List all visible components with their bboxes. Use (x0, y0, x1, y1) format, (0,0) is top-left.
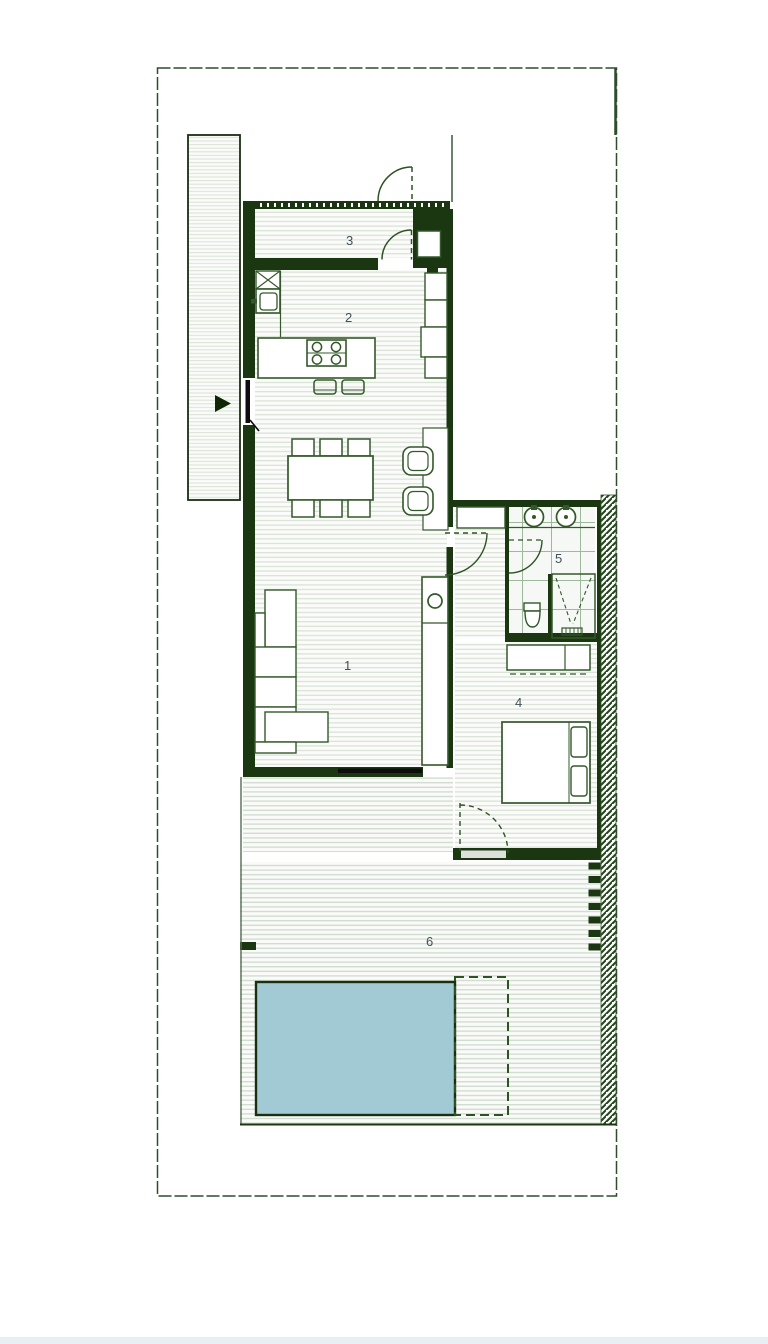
hall-closet (457, 507, 505, 528)
sink-faucet (531, 505, 537, 510)
west-wall-lower (243, 425, 255, 768)
sofa-chaise (265, 712, 328, 742)
bedroom-door-threshold (461, 851, 506, 859)
entry-hall-floor (255, 209, 413, 258)
dining-set (288, 439, 373, 517)
dining-chair (320, 500, 342, 517)
sink-faucet (251, 299, 257, 304)
sofa-module (255, 742, 296, 753)
wing-east-wall (597, 500, 601, 860)
sofa-module (255, 647, 296, 677)
room-label-entry: 3 (346, 233, 353, 248)
dining-table (288, 456, 373, 500)
west-wall-upper (243, 201, 255, 378)
tall-cabinet (425, 300, 447, 327)
room-label-living: 1 (344, 658, 351, 673)
dining-chairs-bottom (292, 500, 370, 517)
dining-chair (348, 500, 370, 517)
sofa-module (255, 677, 296, 707)
swimming-pool (256, 982, 455, 1115)
double-bed (502, 722, 590, 803)
sink-drain (564, 515, 568, 519)
sink-drain (532, 515, 536, 519)
floor-plan-canvas: 1 2 3 4 5 6 (0, 0, 768, 1344)
toilet-tank (524, 603, 540, 611)
bedroom-furniture (502, 645, 590, 803)
entry-storage-niche (418, 231, 441, 257)
sofa-module (265, 590, 296, 647)
dining-chair (292, 500, 314, 517)
dining-chair (348, 439, 370, 456)
tall-cabinet (421, 327, 447, 357)
sink-faucet (563, 505, 569, 510)
toilet-bowl (525, 611, 540, 627)
room-label-kitchen: 2 (345, 310, 352, 325)
dining-chair (292, 439, 314, 456)
tall-cabinet (425, 357, 447, 378)
entry-kitchen-wall (243, 258, 378, 270)
driveway-strip (188, 135, 240, 500)
floor-plan-page: 1 2 3 4 5 6 (0, 0, 768, 1344)
media-partition (422, 577, 448, 765)
covered-terrace-floor (243, 777, 453, 852)
terrace-wall-stub (240, 942, 256, 950)
room-label-terrace: 6 (426, 934, 433, 949)
footer-strip (0, 1337, 768, 1344)
dining-chair (320, 439, 342, 456)
dining-chairs-top (292, 439, 370, 456)
partition-body (422, 577, 448, 765)
kitchen-island (258, 338, 375, 378)
wing-north-wall (453, 500, 600, 507)
wardrobe (507, 645, 590, 670)
sliding-glass-door (338, 769, 422, 774)
room-label-bedroom: 4 (515, 695, 522, 710)
gate-door-arc (378, 167, 412, 201)
room-label-bathroom: 5 (555, 551, 562, 566)
tall-cabinet (425, 273, 447, 300)
entry-door-stop (427, 268, 438, 273)
